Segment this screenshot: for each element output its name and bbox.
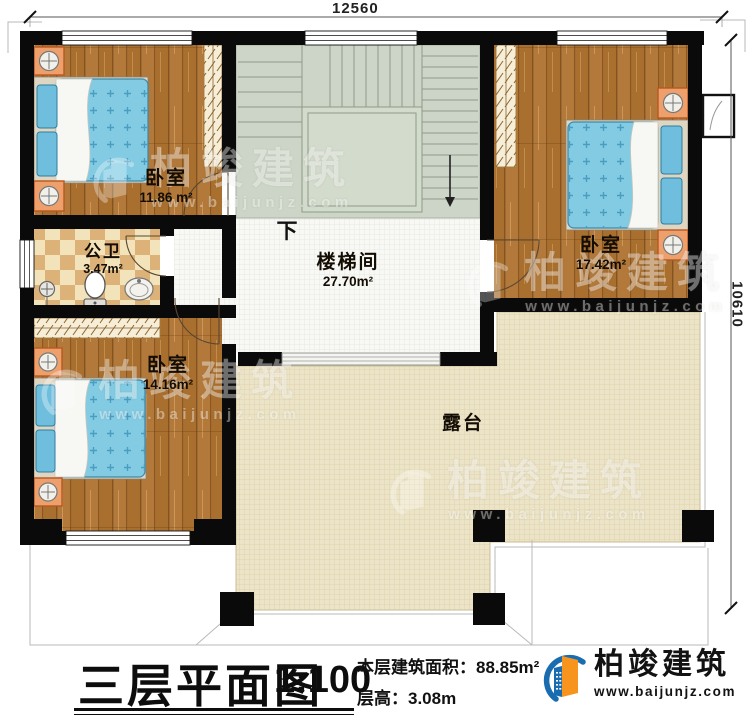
floor-area-label: 本层建筑面积： — [357, 658, 476, 677]
title-underline-thin — [74, 714, 354, 715]
room-name: 卧室 — [143, 356, 193, 376]
bed-e — [566, 120, 688, 230]
window — [282, 353, 440, 365]
room-name: 卧室 — [576, 236, 626, 256]
room-area: 27.70m² — [316, 275, 379, 289]
sink — [125, 278, 153, 300]
wardrobe-e — [496, 45, 516, 167]
column — [220, 592, 254, 626]
column — [473, 593, 505, 625]
door-threshold — [222, 298, 236, 344]
room-name: 露台 — [442, 414, 484, 434]
brand-name: 柏竣建筑 — [594, 648, 736, 683]
ac-platform — [703, 95, 734, 137]
bed-nw — [34, 77, 148, 183]
room-label-bathroom: 公卫 3.47m² — [83, 243, 123, 276]
column — [473, 510, 505, 542]
room-area: 14.16m² — [143, 378, 193, 392]
window — [20, 240, 34, 288]
dimension-right: 10610 — [729, 273, 746, 337]
nightstand — [658, 88, 688, 118]
room-area: 3.47m² — [83, 263, 123, 276]
room-name: 公卫 — [83, 243, 123, 261]
floor-plan-page: 柏竣建筑 www.baijunjz.com 柏竣建筑 www.baijunjz.… — [0, 0, 750, 718]
bed-sw — [34, 378, 146, 479]
floor-height-value: 3.08m — [408, 689, 456, 708]
brand-logo: 柏竣建筑 www.baijunjz.com — [543, 648, 736, 708]
floor-height-line: 层高：3.08m — [357, 684, 456, 709]
wardrobe-sw — [34, 318, 160, 338]
window — [66, 531, 190, 545]
window — [557, 31, 667, 45]
nightstand — [34, 181, 64, 211]
wardrobe-nw — [204, 45, 222, 167]
room-name: 楼梯间 — [316, 253, 379, 273]
room-name: 卧室 — [139, 169, 192, 189]
room-label-stairwell: 楼梯间 27.70m² — [316, 253, 379, 289]
room-area: 11.86 m² — [139, 191, 192, 205]
dimension-top: 12560 — [332, 0, 379, 17]
room-area: 17.42m² — [576, 258, 626, 272]
toilet — [84, 272, 106, 308]
floor-plan-drawing — [0, 0, 750, 718]
floor-area-line: 本层建筑面积：88.85m² — [357, 653, 539, 678]
window — [62, 31, 192, 45]
floor-area-value: 88.85m² — [476, 658, 539, 677]
nightstand — [34, 478, 62, 506]
room-label-bedroom-e: 卧室 17.42m² — [576, 236, 626, 272]
window — [305, 31, 417, 45]
floor-height-label: 层高： — [357, 689, 408, 708]
room-label-bedroom-sw: 卧室 14.16m² — [143, 356, 193, 392]
room-label-bedroom-nw: 卧室 11.86 m² — [139, 169, 192, 205]
title-underline-thick — [74, 708, 354, 711]
brand-text: 柏竣建筑 www.baijunjz.com — [594, 648, 736, 699]
column — [682, 510, 714, 542]
brand-website: www.baijunjz.com — [594, 684, 736, 699]
nightstand — [34, 348, 62, 376]
nightstand — [34, 47, 64, 75]
room-label-terrace: 露台 — [442, 414, 484, 434]
brand-logo-icon — [543, 648, 587, 708]
stairs-down-label: 下 — [277, 215, 298, 245]
nightstand — [658, 230, 688, 260]
